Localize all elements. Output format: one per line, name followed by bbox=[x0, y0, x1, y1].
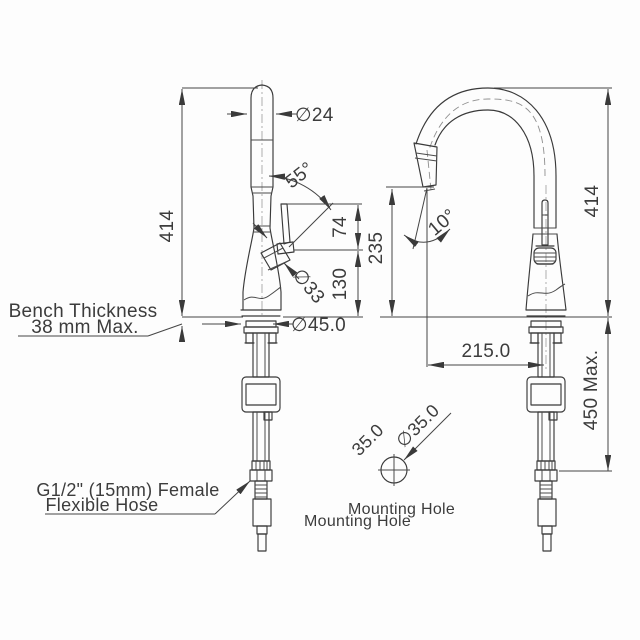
bench-thickness-note-line2: 38 mm Max. bbox=[31, 317, 139, 338]
dim-hole-diameter-label: ∅35.0 bbox=[392, 400, 443, 451]
dim-hole-width-label: 35.0 bbox=[348, 420, 388, 460]
left-view-faucet-drawing bbox=[241, 80, 294, 551]
dim-lever-angle-label: 55° bbox=[281, 158, 317, 193]
dim-left-height-label: 414 bbox=[157, 210, 178, 243]
faucet-dimension-diagram: 414 ∅24 55° 74 130 ∅33 ∅45.0 Bench Thick… bbox=[0, 0, 640, 640]
dim-body-diameter-label: ∅33 bbox=[288, 265, 329, 308]
dim-head-angle-label: 10° bbox=[424, 205, 460, 240]
hose-note-line2: Flexible Hose bbox=[46, 495, 159, 515]
technical-drawing-canvas: 414 ∅24 55° 74 130 ∅33 ∅45.0 Bench Thick… bbox=[0, 0, 640, 640]
right-view-faucet-drawing bbox=[414, 88, 566, 551]
dim-hose-length-label: 450 Max. bbox=[581, 350, 602, 431]
dim-base-diameter-label: ∅45.0 bbox=[291, 315, 346, 336]
dim-spout-reach-label: 215.0 bbox=[461, 341, 510, 362]
dim-spout-outlet-height-label: 235 bbox=[366, 232, 387, 265]
mounting-hole-label-back: Mounting Hole bbox=[304, 513, 411, 530]
dim-lever-travel-label: 74 bbox=[330, 216, 351, 238]
dim-spout-diameter-label: ∅24 bbox=[295, 105, 334, 126]
dim-spout-to-bench-label: 130 bbox=[330, 268, 351, 301]
dim-right-height-label: 414 bbox=[582, 185, 603, 218]
